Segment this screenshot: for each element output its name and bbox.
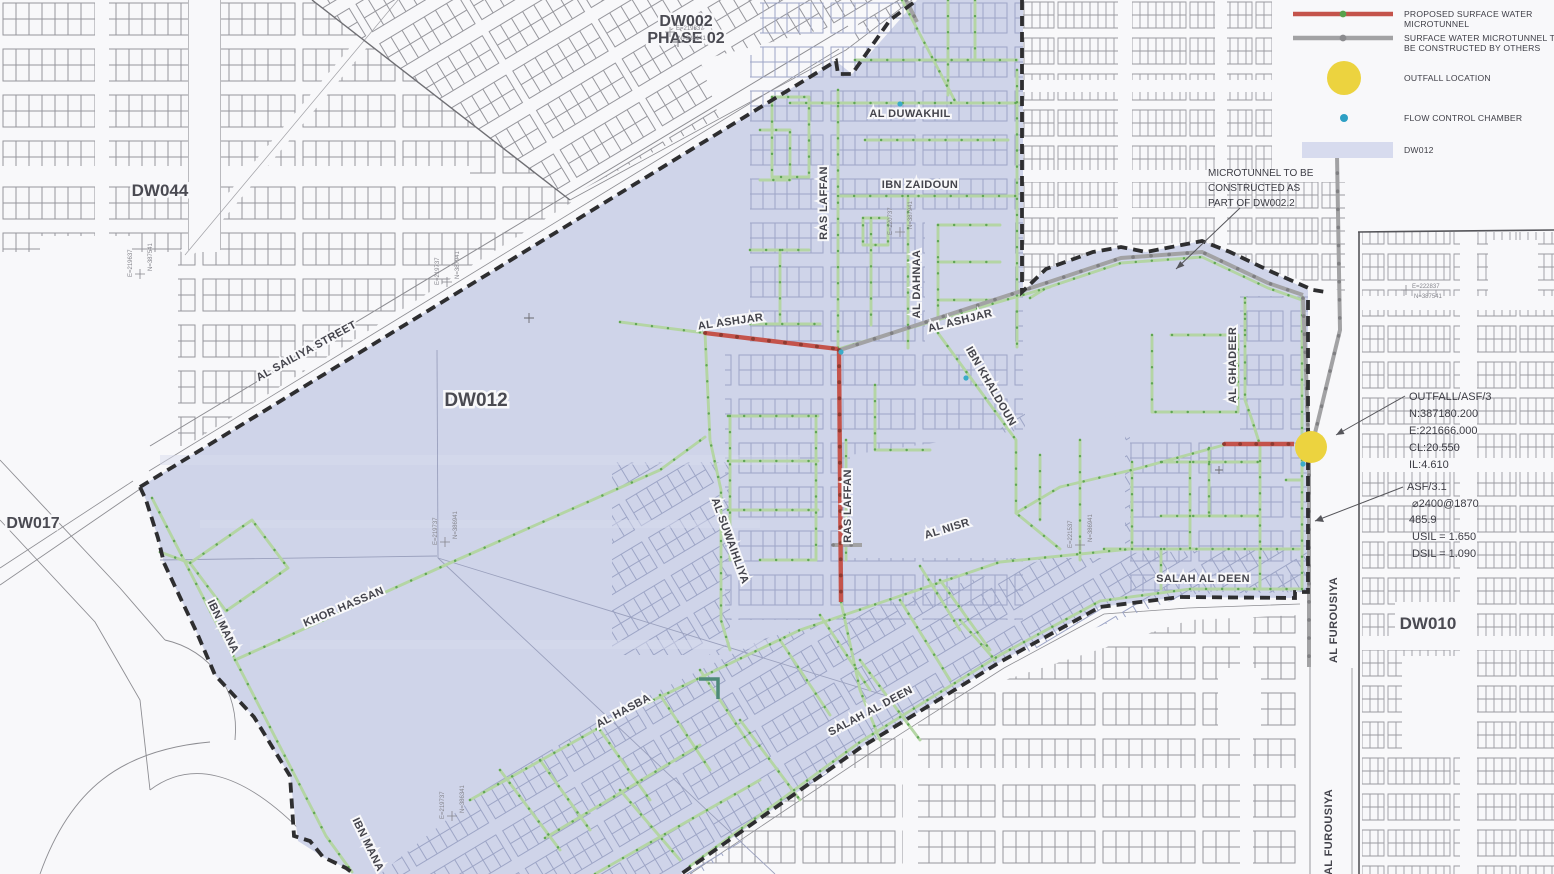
svg-text:BE CONSTRUCTED BY OTHERS: BE CONSTRUCTED BY OTHERS bbox=[1404, 43, 1540, 53]
svg-text:DW017: DW017 bbox=[6, 515, 59, 532]
svg-text:N=387541: N=387541 bbox=[1414, 294, 1443, 300]
svg-text:MICROTUNNEL: MICROTUNNEL bbox=[1404, 19, 1469, 29]
svg-text:N=386341: N=386341 bbox=[460, 784, 466, 813]
svg-text:FLOW CONTROL CHAMBER: FLOW CONTROL CHAMBER bbox=[1404, 113, 1522, 123]
svg-text:E=219737: E=219737 bbox=[433, 517, 439, 545]
svg-text:RAS LAFFAN: RAS LAFFAN bbox=[818, 166, 830, 240]
svg-text:E=219837: E=219837 bbox=[676, 26, 704, 32]
svg-text:ASF/3.1: ASF/3.1 bbox=[1407, 481, 1447, 493]
svg-text:OUTFALL/ASF/3: OUTFALL/ASF/3 bbox=[1409, 391, 1492, 403]
svg-text:RAS LAFFAN: RAS LAFFAN bbox=[842, 469, 854, 543]
svg-text:CL:20.550: CL:20.550 bbox=[1409, 442, 1460, 454]
svg-text:IL:4.610: IL:4.610 bbox=[1409, 459, 1449, 471]
svg-text:SALAH AL DEEN: SALAH AL DEEN bbox=[1156, 573, 1250, 585]
svg-text:SURFACE WATER MICROTUNNEL T: SURFACE WATER MICROTUNNEL T bbox=[1404, 33, 1554, 43]
svg-text:E=221537: E=221537 bbox=[1068, 520, 1074, 548]
svg-text:N=387541: N=387541 bbox=[148, 242, 154, 271]
svg-text:AL DAHNAA: AL DAHNAA bbox=[911, 250, 923, 319]
svg-text:CONSTRUCTED AS: CONSTRUCTED AS bbox=[1208, 183, 1301, 194]
svg-text:DW010: DW010 bbox=[1400, 614, 1457, 633]
svg-text:N=386941: N=386941 bbox=[453, 510, 459, 539]
svg-text:DW044: DW044 bbox=[132, 181, 189, 200]
svg-text:AL FUROUSIYA: AL FUROUSIYA bbox=[1328, 577, 1340, 663]
svg-text:E=219637: E=219637 bbox=[128, 249, 134, 277]
svg-text:E:221666.000: E:221666.000 bbox=[1409, 425, 1478, 437]
svg-text:PART OF DW002.2: PART OF DW002.2 bbox=[1208, 198, 1295, 209]
svg-text:⌀2400@1870: ⌀2400@1870 bbox=[1412, 498, 1479, 510]
svg-text:DW012: DW012 bbox=[444, 390, 507, 411]
svg-text:IBN ZAIDOUN: IBN ZAIDOUN bbox=[882, 179, 959, 191]
svg-text:AL GHADEER: AL GHADEER bbox=[1227, 327, 1239, 404]
svg-text:DW012: DW012 bbox=[1404, 145, 1434, 155]
svg-text:MICROTUNNEL TO BE: MICROTUNNEL TO BE bbox=[1208, 168, 1314, 179]
svg-text:N:387180.200: N:387180.200 bbox=[1409, 408, 1478, 420]
svg-text:E=222837: E=222837 bbox=[1412, 284, 1440, 290]
svg-text:E=220737: E=220737 bbox=[888, 207, 894, 235]
svg-text:N=387941: N=387941 bbox=[455, 250, 461, 279]
svg-text:N=387941: N=387941 bbox=[908, 200, 914, 229]
svg-text:N=388141: N=388141 bbox=[678, 36, 707, 42]
svg-text:AL DUWAKHIL: AL DUWAKHIL bbox=[869, 108, 950, 120]
svg-text:N=386941: N=386941 bbox=[1088, 513, 1094, 542]
svg-text:E=219737: E=219737 bbox=[440, 791, 446, 819]
svg-text:OUTFALL LOCATION: OUTFALL LOCATION bbox=[1404, 73, 1491, 83]
svg-text:PROPOSED SURFACE WATER: PROPOSED SURFACE WATER bbox=[1404, 9, 1533, 19]
svg-text:485.9: 485.9 bbox=[1409, 514, 1437, 526]
svg-text:USIL = 1.650: USIL = 1.650 bbox=[1412, 531, 1476, 543]
svg-text:AL FUROUSIYA: AL FUROUSIYA bbox=[1323, 789, 1335, 874]
svg-text:E=219737: E=219737 bbox=[435, 257, 441, 285]
svg-text:DSIL = 1.090: DSIL = 1.090 bbox=[1412, 548, 1476, 560]
